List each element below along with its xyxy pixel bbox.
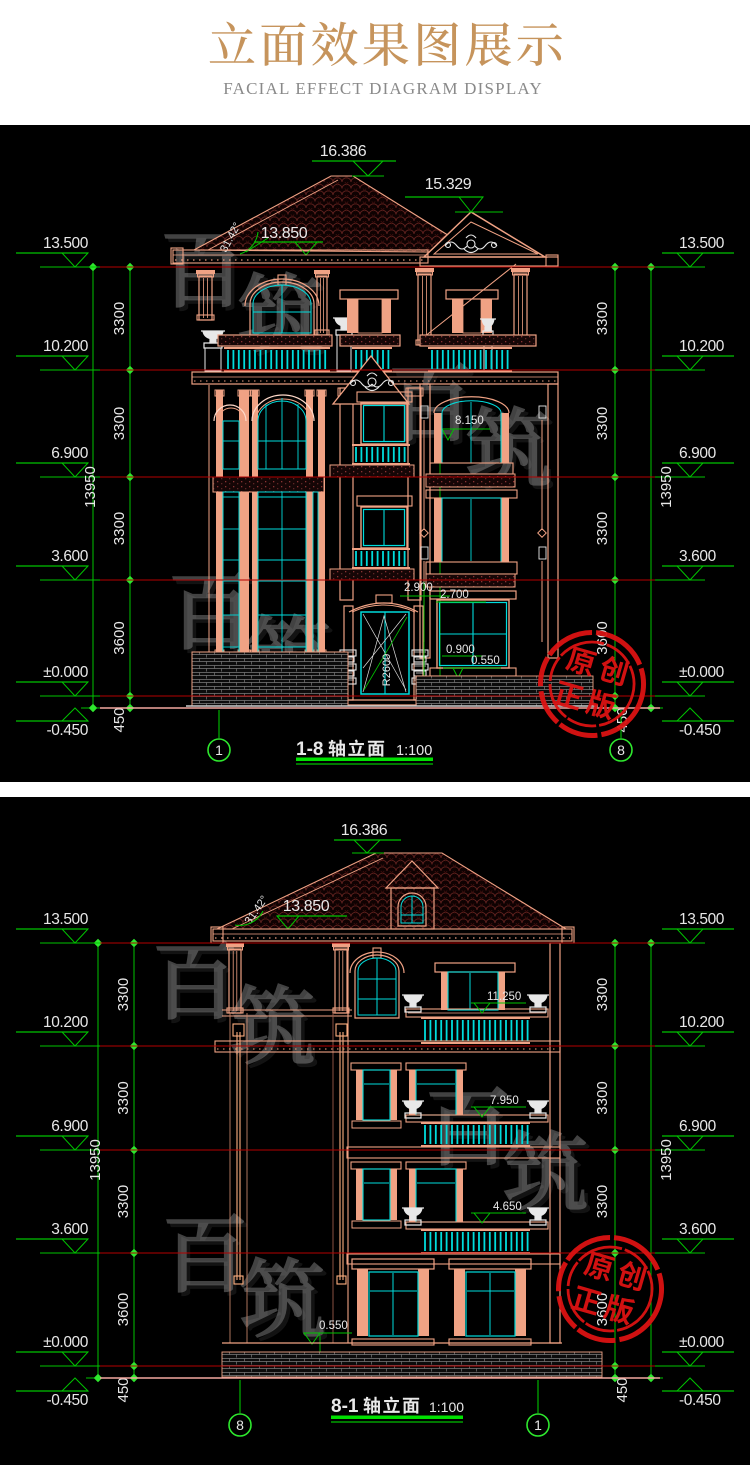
- svg-text:11.250: 11.250: [487, 991, 521, 1003]
- svg-text:3300: 3300: [594, 1081, 611, 1114]
- svg-text:1:100: 1:100: [396, 743, 432, 759]
- svg-text:3300: 3300: [115, 1081, 132, 1114]
- svg-text:6.900: 6.900: [679, 1118, 717, 1135]
- svg-text:3300: 3300: [111, 302, 128, 335]
- svg-text:6.900: 6.900: [679, 445, 717, 462]
- svg-text:10.200: 10.200: [43, 338, 89, 355]
- svg-text:3300: 3300: [594, 512, 611, 545]
- svg-text:10.200: 10.200: [43, 1014, 89, 1031]
- svg-text:6.900: 6.900: [51, 1118, 89, 1135]
- svg-text:1:100: 1:100: [429, 1399, 464, 1415]
- svg-text:10.200: 10.200: [679, 1014, 725, 1031]
- svg-text:13950: 13950: [82, 466, 99, 508]
- svg-text:3600: 3600: [115, 1293, 132, 1326]
- svg-text:3300: 3300: [594, 407, 611, 440]
- svg-text:13.500: 13.500: [679, 235, 725, 252]
- svg-text:13950: 13950: [658, 466, 675, 508]
- svg-text:2.900: 2.900: [404, 582, 433, 594]
- svg-text:13.500: 13.500: [43, 235, 89, 252]
- svg-text:3300: 3300: [111, 407, 128, 440]
- svg-text:R2600: R2600: [381, 654, 393, 686]
- svg-text:8: 8: [236, 1417, 244, 1433]
- svg-text:3300: 3300: [111, 512, 128, 545]
- svg-text:0.550: 0.550: [471, 655, 500, 667]
- svg-text:-0.450: -0.450: [46, 1392, 88, 1409]
- svg-text:±0.000: ±0.000: [679, 664, 725, 681]
- svg-text:16.386: 16.386: [320, 143, 367, 160]
- svg-text:-0.450: -0.450: [679, 722, 721, 739]
- svg-text:1: 1: [215, 742, 223, 758]
- svg-text:1: 1: [534, 1417, 542, 1433]
- svg-text:3.600: 3.600: [679, 1221, 717, 1238]
- svg-text:13.500: 13.500: [679, 911, 725, 928]
- svg-text:3300: 3300: [115, 978, 132, 1011]
- svg-text:8: 8: [617, 742, 625, 758]
- svg-text:4.650: 4.650: [493, 1201, 522, 1213]
- svg-text:3300: 3300: [594, 302, 611, 335]
- svg-text:13.500: 13.500: [43, 911, 89, 928]
- svg-text:3600: 3600: [594, 621, 611, 654]
- svg-text:3300: 3300: [115, 1185, 132, 1218]
- svg-text:FACIAL EFFECT DIAGRAM DISPLAY: FACIAL EFFECT DIAGRAM DISPLAY: [223, 79, 543, 98]
- svg-text:6.900: 6.900: [51, 445, 89, 462]
- svg-text:1-8: 1-8: [296, 739, 323, 760]
- svg-text:3300: 3300: [594, 978, 611, 1011]
- svg-text:0.550: 0.550: [319, 1320, 348, 1332]
- svg-text:450: 450: [111, 707, 128, 732]
- svg-text:-0.450: -0.450: [679, 1392, 721, 1409]
- svg-text:13.850: 13.850: [283, 898, 330, 915]
- svg-text:±0.000: ±0.000: [43, 664, 89, 681]
- svg-text:13950: 13950: [658, 1139, 675, 1181]
- svg-text:3300: 3300: [594, 1185, 611, 1218]
- svg-text:3.600: 3.600: [51, 1221, 89, 1238]
- svg-text:15.329: 15.329: [425, 176, 472, 193]
- svg-text:3600: 3600: [111, 621, 128, 654]
- svg-text:13950: 13950: [87, 1139, 104, 1181]
- svg-text:13.850: 13.850: [261, 225, 308, 242]
- svg-text:3.600: 3.600: [51, 548, 89, 565]
- svg-text:10.200: 10.200: [679, 338, 725, 355]
- svg-text:±0.000: ±0.000: [679, 1334, 725, 1351]
- svg-text:8-1: 8-1: [331, 1396, 359, 1417]
- svg-text:450: 450: [614, 1377, 631, 1402]
- svg-text:-0.450: -0.450: [46, 722, 88, 739]
- svg-text:±0.000: ±0.000: [43, 1334, 89, 1351]
- svg-text:16.386: 16.386: [341, 822, 388, 839]
- svg-text:8.150: 8.150: [455, 415, 484, 427]
- svg-text:2.700: 2.700: [440, 589, 469, 601]
- svg-text:3.600: 3.600: [679, 548, 717, 565]
- svg-text:7.950: 7.950: [490, 1095, 519, 1107]
- svg-text:450: 450: [115, 1377, 132, 1402]
